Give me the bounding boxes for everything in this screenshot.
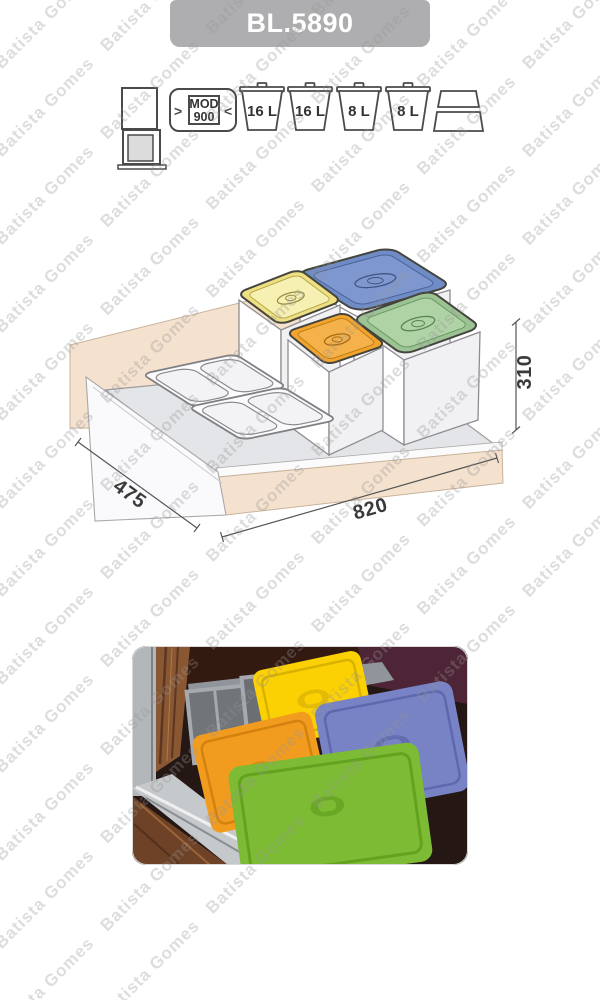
cabinet-drawer-icon: [118, 88, 166, 169]
bin-capacity-icon-3: 8 L: [337, 83, 381, 130]
bin-capacity-label: 8 L: [397, 103, 419, 120]
mod-900-badge: > MOD 900 <: [170, 89, 236, 131]
dimension-height: 310: [512, 319, 536, 434]
technical-diagram: 310 475 820: [50, 225, 550, 555]
bin-capacity-icon-2: 16 L: [288, 83, 332, 130]
bin-capacity-label: 16 L: [295, 103, 325, 120]
bin-capacity-icon-4: 8 L: [386, 83, 430, 130]
product-code-badge: BL.5890: [170, 0, 430, 47]
dimension-height-label: 310: [514, 355, 536, 390]
lids-icon: [434, 91, 483, 131]
pictogram-row: > MOD 900 < 16 L 16 L 8 L: [110, 80, 500, 175]
product-photo: [132, 646, 468, 865]
catalog-page: BL.5890 > MOD 900 < 16 L: [0, 0, 600, 1000]
product-code: BL.5890: [246, 8, 353, 39]
bin-capacity-icon-1: 16 L: [240, 83, 284, 130]
mod-right-arrow: <: [224, 103, 232, 119]
bin-capacity-label: 8 L: [348, 103, 370, 120]
footer: ® Batista Gomes www.batista-gomes.pt © T…: [0, 920, 600, 1000]
mod-label: MOD: [189, 97, 218, 111]
mod-left-arrow: >: [174, 103, 182, 119]
mod-value: 900: [194, 110, 215, 124]
bin-capacity-label: 16 L: [247, 103, 277, 120]
